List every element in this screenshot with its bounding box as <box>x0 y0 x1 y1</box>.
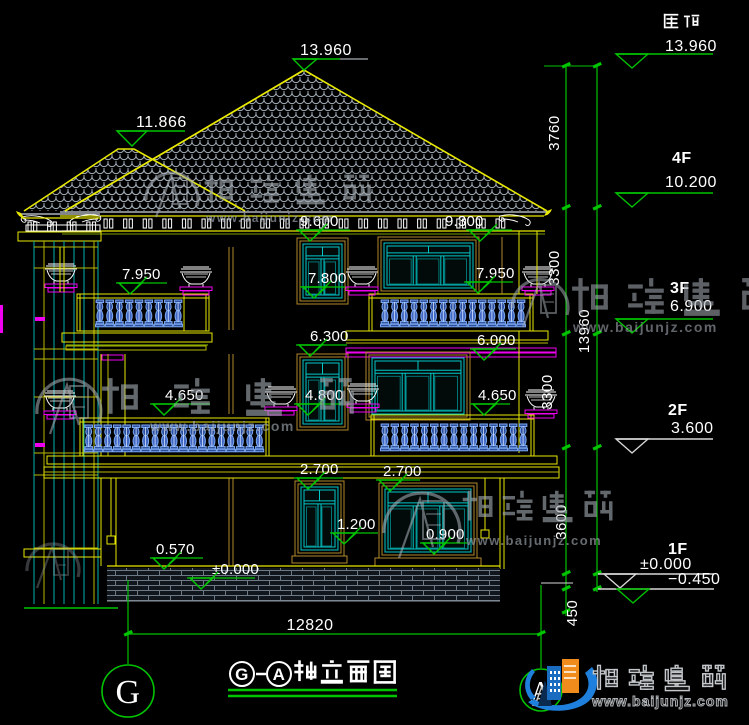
svg-text:www.baijunjz.com: www.baijunjz.com <box>591 693 729 709</box>
svg-text:9.300: 9.300 <box>445 213 484 230</box>
svg-text:0.570: 0.570 <box>156 541 195 558</box>
svg-text:www.baijunjz.com: www.baijunjz.com <box>149 418 295 434</box>
svg-text:A: A <box>273 665 286 684</box>
svg-text:13.960: 13.960 <box>665 38 717 55</box>
svg-text:G: G <box>235 665 249 684</box>
svg-text:2.700: 2.700 <box>383 463 422 480</box>
svg-text:450: 450 <box>564 600 581 627</box>
svg-text:6.300: 6.300 <box>310 328 349 345</box>
svg-text:3.600: 3.600 <box>671 420 714 437</box>
svg-text:www.baijunjz.com: www.baijunjz.com <box>465 533 602 548</box>
svg-text:www.baijunjz.com: www.baijunjz.com <box>205 211 334 225</box>
svg-text:G: G <box>115 674 140 711</box>
svg-text:4F: 4F <box>672 150 692 167</box>
svg-text:www.baijunjz.com: www.baijunjz.com <box>572 319 718 335</box>
svg-text:13.960: 13.960 <box>300 42 352 59</box>
svg-text:2F: 2F <box>668 402 688 419</box>
svg-text:7.950: 7.950 <box>476 265 515 282</box>
svg-text:−0.450: −0.450 <box>668 571 720 588</box>
svg-text:10.200: 10.200 <box>665 174 717 191</box>
svg-text:7.950: 7.950 <box>122 266 161 283</box>
svg-text:2.700: 2.700 <box>300 461 339 478</box>
svg-text:3300: 3300 <box>539 374 556 409</box>
svg-text:6.000: 6.000 <box>477 332 516 349</box>
svg-text:3760: 3760 <box>546 115 563 150</box>
svg-text:12820: 12820 <box>287 617 334 634</box>
svg-text:±0.000: ±0.000 <box>212 561 259 578</box>
svg-text:11.866: 11.866 <box>136 114 187 131</box>
svg-text:1.200: 1.200 <box>337 516 376 533</box>
